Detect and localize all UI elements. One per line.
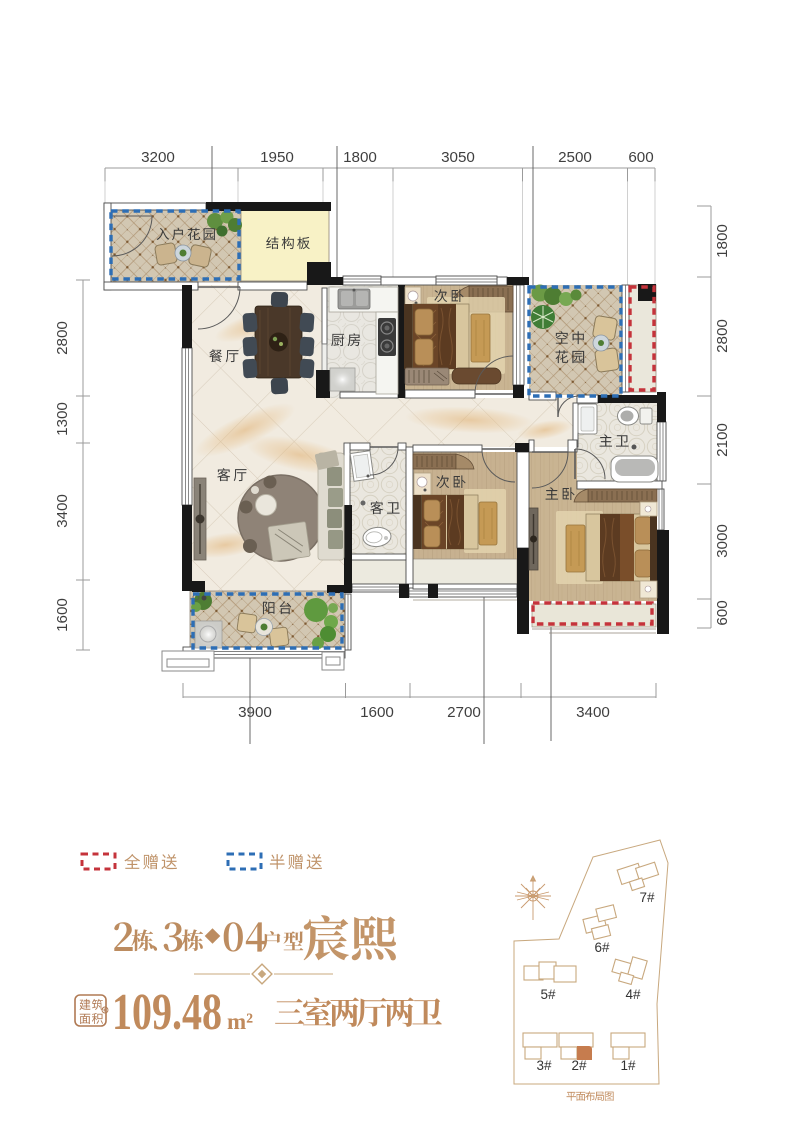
svg-text:3000: 3000 (714, 524, 731, 558)
svg-text:2800: 2800 (714, 319, 731, 353)
svg-text:6#: 6# (594, 940, 610, 955)
svg-text:2#: 2# (571, 1058, 587, 1073)
svg-text:1600: 1600 (360, 704, 394, 721)
svg-text:1800: 1800 (714, 224, 731, 258)
svg-text:7#: 7# (639, 890, 655, 905)
svg-text:5#: 5# (540, 987, 556, 1002)
svg-text:3900: 3900 (238, 704, 272, 721)
svg-text:600: 600 (628, 149, 653, 166)
svg-text:4#: 4# (625, 987, 641, 1002)
svg-text:1#: 1# (620, 1058, 636, 1073)
svg-text:3400: 3400 (54, 494, 71, 528)
svg-text:1950: 1950 (260, 149, 294, 166)
svg-text:2500: 2500 (558, 149, 592, 166)
svg-text:3200: 3200 (141, 149, 175, 166)
svg-text:109.48: 109.48 (112, 984, 222, 1041)
svg-text:1300: 1300 (54, 402, 71, 436)
svg-text:1600: 1600 (54, 598, 71, 632)
svg-text:600: 600 (714, 600, 731, 625)
svg-text:1800: 1800 (343, 149, 377, 166)
svg-text:3050: 3050 (441, 149, 475, 166)
svg-text:2800: 2800 (54, 321, 71, 355)
svg-text:2700: 2700 (447, 704, 481, 721)
svg-text:m²: m² (227, 1009, 253, 1034)
svg-text:3400: 3400 (576, 704, 610, 721)
svg-text:3#: 3# (536, 1058, 552, 1073)
svg-text:2100: 2100 (714, 423, 731, 457)
